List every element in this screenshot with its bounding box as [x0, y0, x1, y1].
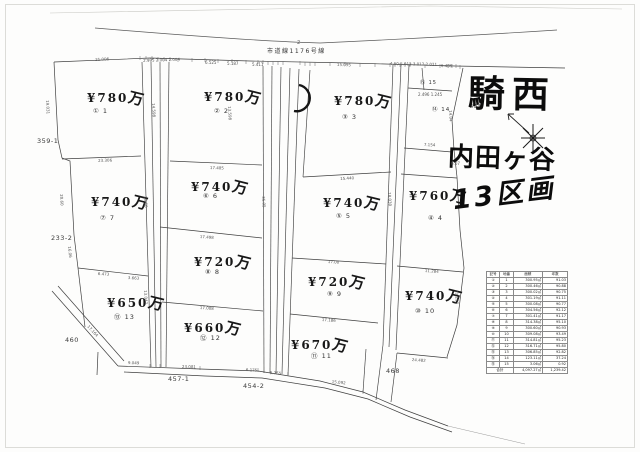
dimension-label: 6.485 — [441, 63, 453, 68]
plot-division-lines — [62, 62, 463, 402]
plot-price-9: ¥720万 — [308, 270, 367, 291]
total-tsubo: 1,239.42 — [543, 368, 568, 374]
area-table-footer: 合計 4,097.27㎡ 1,239.42 — [487, 368, 568, 374]
plot-price-2: ¥780万 — [204, 85, 263, 106]
parcel-label-460: 460 — [65, 336, 79, 344]
plot-price-3: ¥780万 — [334, 89, 393, 110]
dimension-label: 17.00 — [328, 259, 340, 265]
dimension-label: 11.284 — [425, 268, 439, 274]
road-lines — [95, 28, 557, 43]
plot-number-3: ③ 3 — [342, 113, 357, 121]
plot-price-7: ¥740万 — [91, 190, 150, 211]
dimension-label: 7.154 — [424, 142, 436, 147]
dimension-label: 13.293 — [454, 290, 460, 304]
parcel-label-454-2: 454-2 — [243, 382, 264, 390]
plot-price-8: ¥720万 — [194, 250, 253, 271]
plot-number-6: ⑥ 6 — [203, 192, 218, 200]
plot-price-1: ¥780万 — [87, 86, 146, 107]
total-row: 合計 4,097.27㎡ 1,239.42 — [487, 368, 568, 374]
plot-number-8: ⑧ 8 — [205, 268, 220, 276]
dimension-label: 21.006 — [95, 56, 109, 62]
dimension-label: 23.081 — [182, 364, 196, 369]
dimension-label: 2 — [297, 40, 300, 46]
plot-number-12: ⑫ 12 — [200, 332, 221, 342]
dimension-label: 5.187 — [227, 61, 238, 66]
dimension-label: 17.485 — [210, 165, 224, 170]
parcel-label-359-1: 359-1 — [37, 137, 58, 145]
plot-number-1: ① 1 — [93, 107, 108, 115]
area-table: 記号 地番 面積 坪数 ① 1 300.95㎡ 91.03 ② 2 300.46… — [486, 271, 568, 374]
dimension-label: 35.05 — [261, 196, 267, 208]
hand-drawn-circle — [294, 85, 310, 111]
road-name: 市道線1176号線 — [267, 46, 326, 55]
dimension-label: 5.755 — [270, 370, 282, 376]
dimension-label: 24.482 — [412, 357, 426, 363]
plot-number-7: ⑦ 7 — [100, 214, 115, 222]
dimension-label: 17.008 — [200, 305, 214, 311]
plot-price-13: ¥650万 — [107, 291, 166, 312]
dimension-label: 3.663 — [128, 275, 140, 281]
dimension-label: 6.175 — [246, 367, 258, 373]
plot-number-15: ⑮ 15 — [420, 79, 437, 86]
dimension-label: 5.411 — [252, 62, 263, 67]
handwritten-area-name: 騎西 — [468, 63, 557, 119]
dimension-label: 6.473 — [98, 271, 110, 277]
dimension-label: 14.598 — [151, 103, 157, 117]
dimension-label: 15.440 — [340, 175, 354, 181]
dimension-label: 23.306 — [98, 158, 112, 163]
dimension-label: 9.049 — [128, 360, 140, 365]
dimension-label: 6.525 — [205, 60, 216, 65]
dimension-label: 17.186 — [322, 317, 336, 323]
total-area: 4,097.27㎡ — [513, 368, 542, 374]
plot-number-11: ⑪ 11 — [311, 350, 332, 360]
parcel-label-468: 468 — [386, 367, 400, 375]
scan-artifact-lines — [50, 6, 622, 13]
plot-number-4: ④ 4 — [428, 214, 443, 222]
plot-price-5: ¥740万 — [323, 191, 382, 212]
dimension-label: 13.598 — [227, 106, 233, 120]
dimension-label: 4.50 5.012 3.012 2.021 — [390, 61, 437, 67]
dimension-label: 14.04 — [448, 110, 454, 122]
dimension-label: 2.496 1.245 — [418, 92, 442, 97]
total-label: 合計 — [487, 368, 514, 374]
dimension-label: 15.095 — [337, 62, 351, 67]
parcel-label-233-2: 233-2 — [51, 234, 72, 242]
dimension-label: 19.031 — [45, 100, 51, 114]
parcel-label-457-1: 457-1 — [168, 375, 189, 383]
dimension-label: 16.06 — [67, 246, 73, 258]
scanned-plot-map-page: 市道線1176号線 ¥780万 ¥780万 ¥780万 ¥760万 ¥740万 … — [0, 0, 640, 452]
dimension-label: 13.047 — [143, 290, 149, 304]
plot-number-5: ⑤ 5 — [336, 212, 351, 220]
dimension-label: 6.07 — [451, 161, 460, 166]
dimension-label: 18.030 — [387, 192, 393, 206]
dimension-label: 20.60 — [59, 194, 65, 206]
plot-number-10: ⑩ 10 — [415, 307, 435, 315]
plot-price-6: ¥740万 — [191, 175, 250, 196]
plot-number-9: ⑨ 9 — [327, 290, 342, 298]
plot-number-13: ⑬ 13 — [114, 311, 135, 321]
area-table-body: ① 1 300.95㎡ 91.03 ② 2 300.46㎡ 90.88 ③ 3 … — [487, 278, 568, 368]
dimension-label: 17.498 — [200, 234, 214, 240]
dimension-label: 30.60 — [143, 196, 149, 208]
